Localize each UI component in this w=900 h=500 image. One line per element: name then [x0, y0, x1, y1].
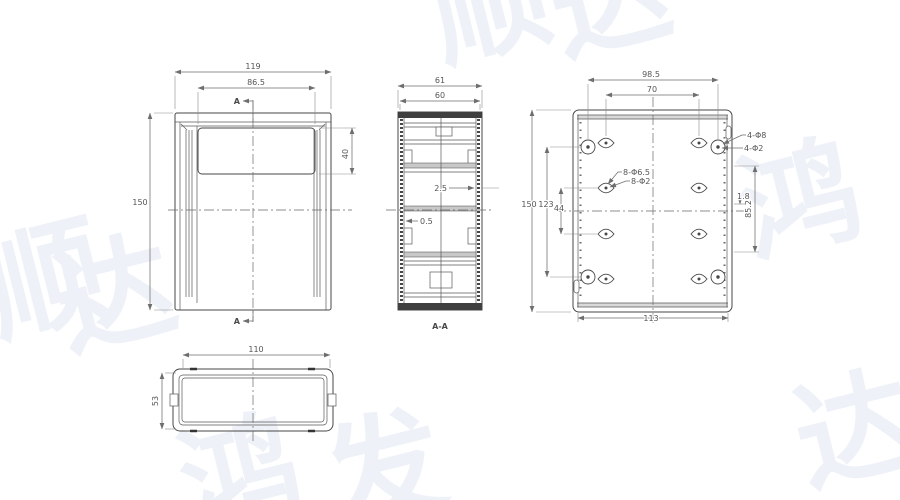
callout-corner-holes-label: 4-Φ8	[747, 131, 766, 140]
watermark-glyph: 达	[41, 214, 189, 376]
front-dim-width-label: 119	[245, 62, 260, 71]
back-dim-corner-vspan-label: 123	[538, 200, 553, 209]
back-dim-boss-vspan-label: 44	[554, 204, 564, 213]
front-dim-height-label: 150	[132, 198, 147, 207]
callout-corner-pilot-label: 4-Φ2	[744, 144, 763, 153]
section-mark-bottom: A	[234, 310, 253, 326]
drawing-svg: 顺 达 顺 达 鸿 发 鸿 达 A A	[0, 0, 900, 500]
section-mark-top: A	[234, 97, 253, 122]
front-dim-window-height: 40	[319, 128, 356, 174]
section-dim-inner: 60	[400, 91, 480, 110]
section-lid-band	[398, 112, 482, 118]
right-grooves	[314, 122, 326, 310]
front-dim-window-height-label: 40	[341, 149, 350, 159]
front-dim-window-width-label: 86.5	[247, 78, 265, 87]
watermark-glyph: 达	[781, 349, 900, 500]
bottom-dim-depth-label: 53	[151, 396, 160, 406]
section-rib-band-1	[404, 163, 476, 168]
section-dim-inner-label: 60	[435, 91, 445, 100]
watermark: 顺 达 顺 达 鸿 发 鸿 达	[0, 0, 900, 500]
back-dim-width-label: 113	[643, 314, 658, 323]
back-dim-corner-span-label: 98.5	[642, 70, 660, 79]
watermark-glyph: 顺	[416, 0, 564, 86]
section-dim-rib: 0.5	[404, 213, 433, 226]
back-dim-edge-gap-label: 1.8	[737, 192, 750, 201]
back-dim-height-label: 150	[521, 200, 536, 209]
section-mark-bottom-label: A	[234, 317, 241, 326]
section-bottom-band	[398, 303, 482, 310]
back-dim-boss-span-label: 70	[647, 85, 657, 94]
left-grooves	[180, 122, 197, 310]
section-notch-top	[436, 127, 452, 136]
back-view: 98.5 70 113 150 123	[521, 70, 766, 323]
boss-left-lower	[404, 228, 412, 244]
section-dim-wall: 2.5	[434, 184, 499, 193]
section-dim-wall-label: 2.5	[434, 184, 447, 193]
callout-boss-holes: 8-Φ6.5 8-Φ2	[608, 168, 650, 187]
section-view-label: A-A	[432, 322, 449, 331]
section-rib-band-3	[404, 252, 476, 257]
back-dim-width: 113	[578, 313, 728, 323]
edge-slot-right	[726, 126, 731, 139]
callout-boss-pilot-label: 8-Φ2	[631, 177, 650, 186]
bottom-dim-width: 110	[183, 345, 330, 368]
callout-boss-holes-label: 8-Φ6.5	[623, 168, 650, 177]
notch-right	[328, 394, 336, 406]
section-mark-top-label: A	[234, 97, 241, 106]
front-dim-window-width: 86.5	[198, 78, 315, 124]
front-window	[198, 128, 315, 174]
boss-right-lower	[468, 228, 476, 244]
bottom-dim-width-label: 110	[248, 345, 263, 354]
section-view: 2.5 0.5 61 60 A-A	[386, 76, 499, 331]
edge-slot-left	[574, 280, 579, 293]
notch-left	[170, 394, 178, 406]
watermark-glyph: 鸿	[166, 394, 314, 500]
cad-drawing-sheet: 顺 达 顺 达 鸿 发 鸿 达 A A	[0, 0, 900, 500]
back-dim-slot-label: 85.2	[744, 200, 753, 218]
section-dim-rib-label: 0.5	[420, 217, 433, 226]
section-dim-outer-label: 61	[435, 76, 445, 85]
